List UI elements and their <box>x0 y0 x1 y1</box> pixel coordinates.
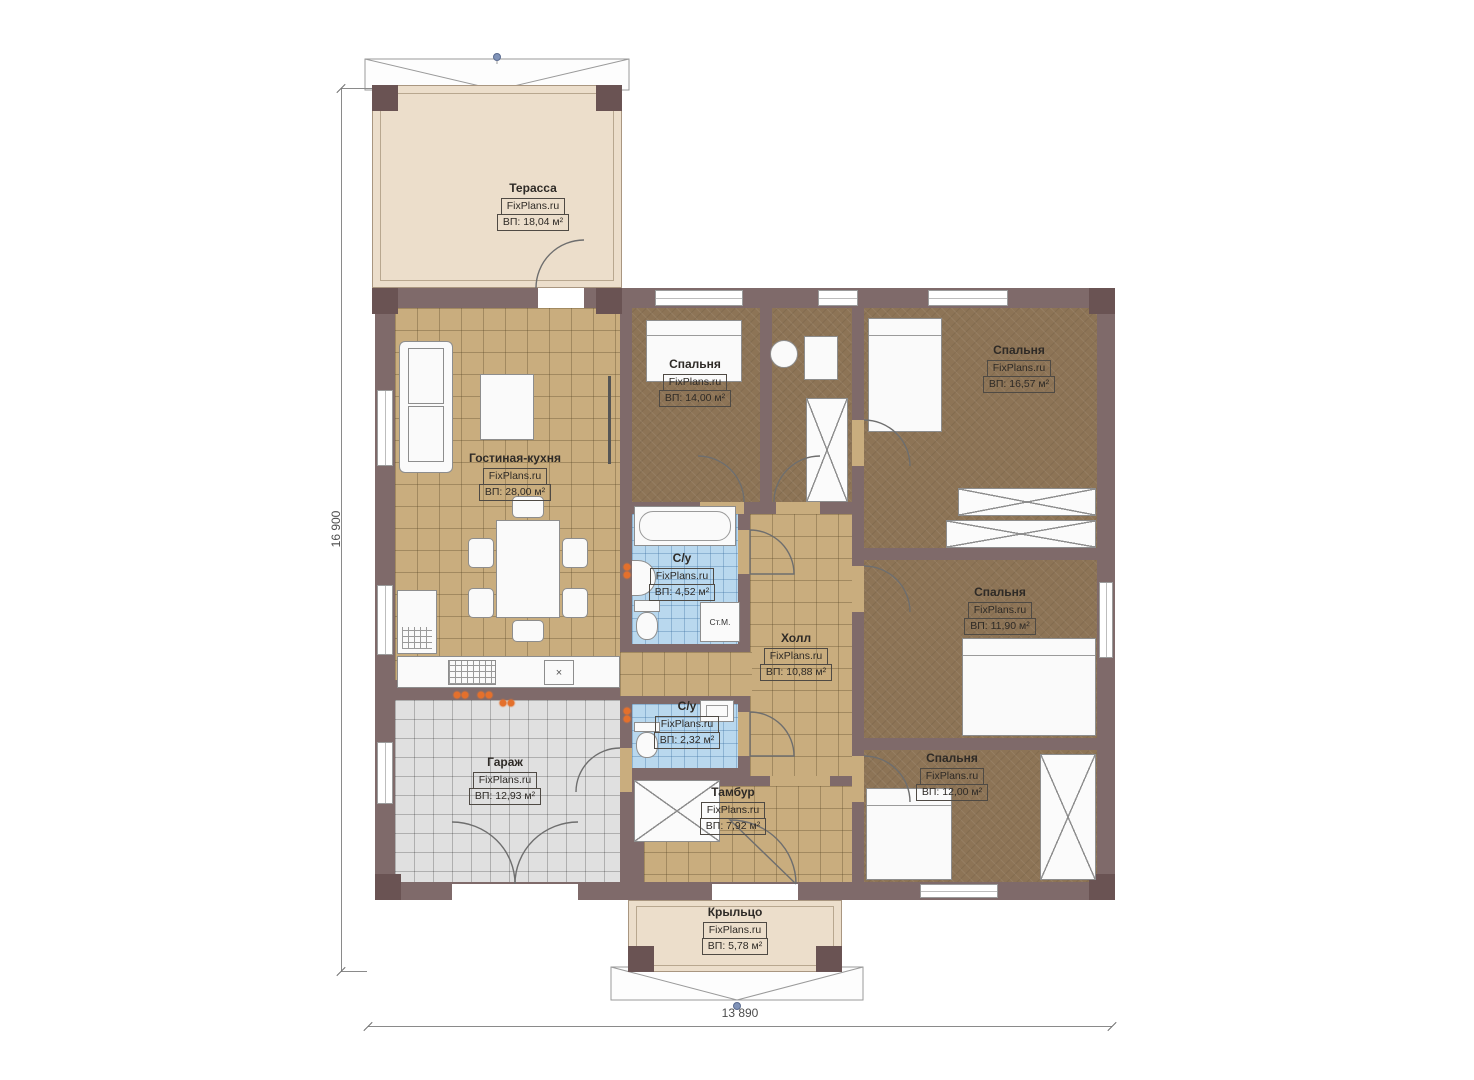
toilet-bowl <box>636 612 658 640</box>
wall-lamp-icon <box>476 690 494 700</box>
porch-post <box>816 946 842 972</box>
bed-pillow-line <box>869 335 941 336</box>
dimension-extension <box>341 88 373 89</box>
dining-table <box>496 520 560 618</box>
room-name: Тамбур <box>676 786 790 800</box>
dimension-width-label: 13 890 <box>690 1006 790 1020</box>
terrace-door-opening <box>538 288 584 308</box>
room-label-hall: Холл FixPlans.ru ВП: 10,88 м² <box>740 632 852 681</box>
room-name: Холл <box>740 632 852 646</box>
sofa-cushion <box>408 348 444 404</box>
room-area: ВП: 12,00 м² <box>916 784 988 801</box>
room-name: Спальня <box>962 344 1076 358</box>
room-label-living: Гостиная-кухня FixPlans.ru ВП: 28,00 м² <box>450 452 580 501</box>
room-name: Терасса <box>473 182 593 196</box>
room-label-porch: Крыльцо FixPlans.ru ВП: 5,78 м² <box>678 906 792 955</box>
door-arc <box>750 530 794 574</box>
wall-lamp-icon <box>452 690 470 700</box>
room-brand: FixPlans.ru <box>655 716 720 733</box>
chair <box>468 588 494 618</box>
door-opening <box>852 420 864 466</box>
room-brand: FixPlans.ru <box>703 922 768 939</box>
door-arc <box>698 456 744 502</box>
terrace-post <box>372 85 398 111</box>
chair <box>562 538 588 568</box>
window <box>920 884 998 898</box>
kitchen-counter <box>397 656 620 688</box>
room-label-bedroom-3: Спальня FixPlans.ru ВП: 11,90 м² <box>943 586 1057 635</box>
room-area: ВП: 16,57 м² <box>983 376 1055 393</box>
door-arc <box>452 822 515 884</box>
room-brand: FixPlans.ru <box>764 648 829 665</box>
room-brand: FixPlans.ru <box>473 772 538 789</box>
wall-post <box>372 288 398 314</box>
room-brand: FixPlans.ru <box>663 374 728 391</box>
fridge-grill <box>402 627 432 649</box>
wall-post <box>1089 288 1115 314</box>
room-label-bedroom-2: Спальня FixPlans.ru ВП: 16,57 м² <box>962 344 1076 393</box>
entrance-door-opening <box>712 884 798 900</box>
wardrobe <box>946 520 1096 548</box>
desk-chair <box>770 340 798 368</box>
room-area: ВП: 11,90 м² <box>964 618 1036 635</box>
garage-door-opening <box>452 884 578 900</box>
door-opening <box>776 502 820 514</box>
chair <box>562 588 588 618</box>
floor-plan: 16 900 13 890 <box>0 0 1474 1080</box>
room-brand: FixPlans.ru <box>501 198 566 215</box>
room-label-bedroom-4: Спальня FixPlans.ru ВП: 12,00 м² <box>895 752 1009 801</box>
window <box>377 585 393 655</box>
door-arc <box>774 456 820 502</box>
room-area: ВП: 2,32 м² <box>654 732 720 749</box>
room-name: Спальня <box>943 586 1057 600</box>
door-opening <box>738 712 750 756</box>
dimension-extension <box>341 971 367 972</box>
room-name: Гостиная-кухня <box>450 452 580 466</box>
window <box>1099 582 1113 658</box>
room-label-bathroom-1: С/у FixPlans.ru ВП: 4,52 м² <box>640 552 724 601</box>
room-name: Спальня <box>895 752 1009 766</box>
wardrobe <box>1040 754 1096 880</box>
terrace-post <box>596 85 622 111</box>
room-brand: FixPlans.ru <box>483 468 548 485</box>
room-label-tambour: Тамбур FixPlans.ru ВП: 7,92 м² <box>676 786 790 835</box>
room-label-bathroom-2: С/у FixPlans.ru ВП: 2,32 м² <box>645 700 729 749</box>
porch-post <box>628 946 654 972</box>
room-area: ВП: 7,92 м² <box>700 818 766 835</box>
window <box>377 390 393 466</box>
room-label-garage: Гараж FixPlans.ru ВП: 12,93 м² <box>448 756 562 805</box>
kitchen-sink: × <box>544 660 574 685</box>
dimension-height-label: 16 900 <box>329 499 343 559</box>
door-arc <box>536 240 584 288</box>
bed-pillow-line <box>963 655 1095 656</box>
room-brand: FixPlans.ru <box>701 802 766 819</box>
wall-post <box>596 288 622 314</box>
bathtub-inner <box>639 511 731 541</box>
door-opening <box>852 566 864 612</box>
door-arc <box>750 712 794 756</box>
room-label-bedroom-1: Спальня FixPlans.ru ВП: 14,00 м² <box>638 358 752 407</box>
wall-lamp-icon <box>622 562 632 580</box>
wall-post <box>375 874 401 900</box>
door-arc <box>515 822 578 884</box>
dimension-line-horizontal <box>368 1026 1112 1027</box>
room-area: ВП: 4,52 м² <box>649 584 715 601</box>
tv-panel <box>608 376 611 464</box>
room-area: ВП: 5,78 м² <box>702 938 768 955</box>
hall-tambour-opening <box>770 776 830 786</box>
room-label-terrace: Терасса FixPlans.ru ВП: 18,04 м² <box>473 182 593 231</box>
sofa <box>399 341 453 473</box>
room-brand: FixPlans.ru <box>920 768 985 785</box>
fridge <box>397 590 437 654</box>
door-opening <box>852 756 864 802</box>
door-opening <box>620 748 632 792</box>
door-arc <box>576 748 620 792</box>
room-brand: FixPlans.ru <box>987 360 1052 377</box>
window <box>818 290 858 306</box>
room-name: Гараж <box>448 756 562 770</box>
room-area: ВП: 28,00 м² <box>479 484 551 501</box>
room-name: С/у <box>645 700 729 714</box>
sofa-cushion <box>408 406 444 462</box>
window <box>377 742 393 804</box>
room-brand: FixPlans.ru <box>968 602 1033 619</box>
window <box>928 290 1008 306</box>
bed <box>962 638 1096 736</box>
bed-pillow-line <box>867 805 951 806</box>
room-name: С/у <box>640 552 724 566</box>
toilet <box>634 600 660 612</box>
desk <box>804 336 838 380</box>
bed-pillow-line <box>647 335 741 336</box>
door-arc <box>864 566 910 612</box>
bed <box>868 318 942 432</box>
window <box>655 290 743 306</box>
room-area: ВП: 14,00 м² <box>659 390 731 407</box>
door-opening <box>738 530 750 574</box>
room-area: ВП: 10,88 м² <box>760 664 832 681</box>
chair <box>512 620 544 642</box>
wall-lamp-icon <box>622 706 632 724</box>
chair <box>468 538 494 568</box>
door-arc <box>864 420 910 466</box>
washing-machine: Ст.М. <box>700 602 740 642</box>
wall-lamp-icon <box>498 698 516 708</box>
room-name: Спальня <box>638 358 752 372</box>
bathtub <box>634 506 736 546</box>
stove <box>448 660 496 685</box>
hall-passage-floor <box>620 652 752 696</box>
room-area: ВП: 12,93 м² <box>469 788 541 805</box>
room-name: Крыльцо <box>678 906 792 920</box>
room-area: ВП: 18,04 м² <box>497 214 569 231</box>
coffee-table <box>480 374 534 440</box>
room-brand: FixPlans.ru <box>650 568 715 585</box>
wardrobe <box>958 488 1096 516</box>
